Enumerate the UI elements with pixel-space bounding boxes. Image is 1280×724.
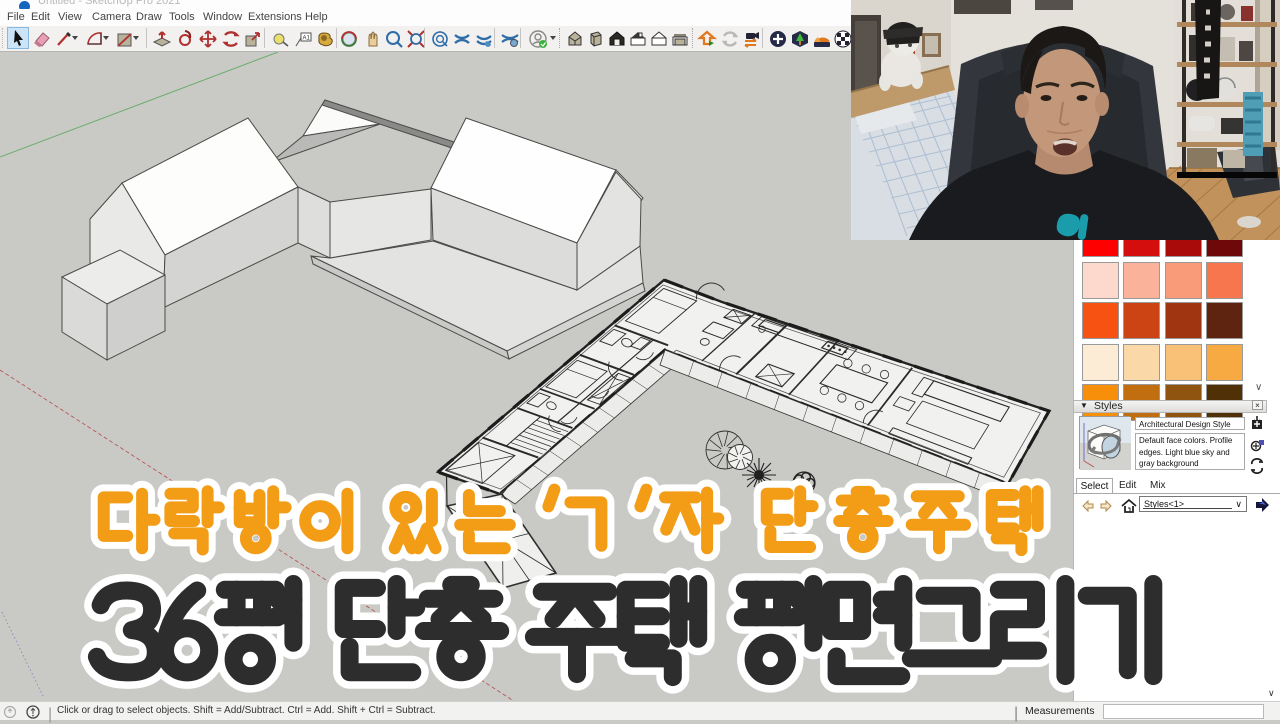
svg-text:A1: A1	[303, 36, 311, 42]
